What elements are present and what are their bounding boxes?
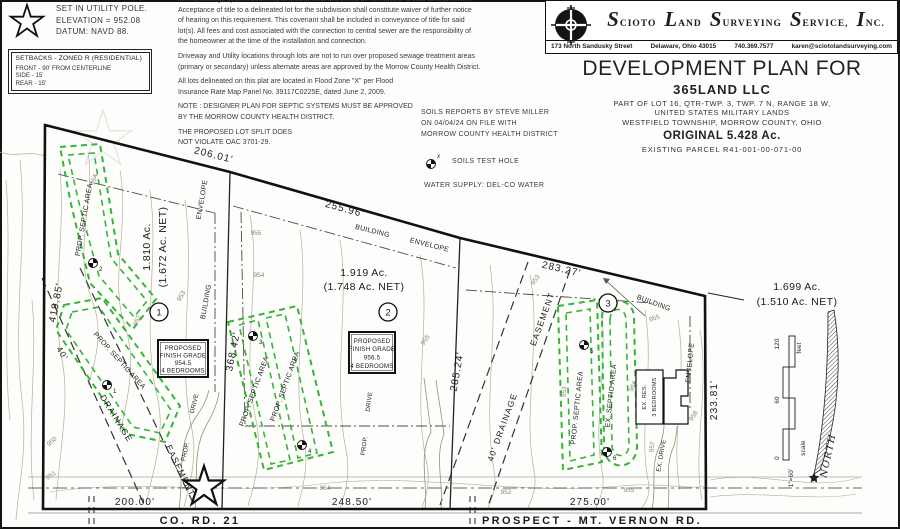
svg-text:958: 958: [688, 409, 700, 422]
grade2-elevation: 956.5: [364, 355, 381, 362]
note-line: (primary or secondary) unless alternate …: [178, 63, 560, 74]
test-hole-1: 1: [113, 388, 117, 395]
building-envelope-lines: [58, 174, 690, 426]
benchmark-line1: SET IN UTILITY POLE.: [56, 3, 147, 15]
svg-text:953: 953: [176, 289, 188, 302]
lot3-acreage-leader: [708, 293, 744, 300]
envelope-label-lot3: ENVELOPE: [685, 343, 695, 384]
grade-box-lot1: PROPOSED FINISH GRADE 954.5 4 BEDROOMS: [158, 340, 208, 377]
firm-email: karen@sciotolandsurveying.com: [792, 43, 892, 50]
ex-res-bedrooms-label: 3 BEDROOMS: [652, 377, 658, 416]
building-label-lot1: BUILDING: [200, 284, 213, 320]
dim-275: 275.00': [570, 497, 610, 508]
lot3-acres: 1.699 Ac.: [773, 281, 820, 293]
legal-line: UNITED STATES MILITARY LANDS: [547, 108, 897, 117]
survey-plat-sheet: EX. RES. 3 BEDROOMS PROPOSED FINISH GRAD…: [0, 0, 900, 529]
svg-text:957: 957: [649, 441, 657, 453]
legend-x-mark: x: [436, 153, 441, 160]
grade2-bedrooms: 4 BEDROOMS: [350, 363, 393, 370]
drive-label-lot2: DRIVE: [365, 391, 375, 412]
soils-report-line: SOILS REPORTS BY STEVE MILLER: [421, 107, 558, 118]
firm-word: SURVEYING: [710, 7, 782, 32]
note-line: of hearing on this requirement. This cov…: [178, 16, 560, 27]
road-label-prospect-mt-vernon: PROSPECT - MT. VERNON RD.: [482, 515, 702, 527]
note-line: All lots delineated on this plat are loc…: [178, 77, 560, 88]
owner-name: 365LAND LLC: [547, 82, 897, 97]
firm-contact-row: 173 North Sandusky Street Delaware, Ohio…: [546, 40, 897, 53]
easement-40-label-lot1: 40': [54, 345, 70, 363]
firm-word: SCIOTO: [607, 7, 656, 32]
drainage-easement-lines: [42, 262, 570, 509]
setback-front: FRONT - 90' FROM CENTERLINE: [16, 65, 145, 73]
acreage-labels: 1.810 Ac. (1.672 Ac. NET) 1.919 Ac. (1.7…: [141, 207, 837, 321]
svg-text:955: 955: [624, 487, 635, 494]
grade1-line1: PROPOSED: [165, 345, 202, 352]
setback-rear: REAR - 15': [16, 80, 145, 88]
dim-368: 368.42': [224, 331, 242, 373]
soils-report-line: ON 04/04/24 ON FILE WITH: [421, 118, 558, 129]
easement-label-lot3: EASEMENT: [528, 291, 557, 347]
test-hole-6: 6: [613, 455, 617, 462]
north-arrow: NORTH: [809, 310, 839, 482]
firm-address: 173 North Sandusky Street: [551, 43, 632, 50]
title-block: DEVELOPMENT PLAN FOR 365LAND LLC PART OF…: [547, 57, 897, 154]
soil-test-hole-legend-icon: [427, 160, 436, 169]
grade1-bedrooms: 4 BEDROOMS: [161, 368, 204, 375]
setbacks-box: SETBACKS - ZONED R (RESIDENTIAL) FRONT -…: [8, 49, 152, 94]
svg-text:954: 954: [254, 272, 265, 279]
benchmark-line2: ELEVATION = 952.08: [56, 15, 147, 27]
building-label-lot3: BUILDING: [636, 294, 672, 313]
scale-bar: 120 60 0 feet scale 1"=60': [774, 336, 807, 487]
svg-text:950: 950: [46, 435, 59, 448]
dim-233: 233.81': [709, 380, 720, 420]
svg-text:955: 955: [420, 333, 432, 346]
benchmark-legend-star: [11, 5, 43, 36]
svg-text:951: 951: [45, 470, 58, 482]
scale-ratio: 1"=60': [788, 469, 795, 488]
existing-parcel-number: EXISTING PARCEL R41-001-00-071-00: [547, 145, 897, 154]
grade1-elevation: 954.5: [175, 360, 192, 367]
firm-word: SERVICE,: [790, 7, 849, 32]
envelope-label-lot2: ENVELOPE: [409, 237, 450, 254]
septic-label-lot2-b: PROP. SEPTIC AREA: [270, 351, 302, 423]
benchmark-line3: DATUM: NAVD 88.: [56, 26, 147, 38]
grade2-line1: PROPOSED: [354, 338, 391, 345]
water-supply-note: WATER SUPPLY: DEL-CO WATER: [424, 182, 544, 189]
test-hole-2: 2: [99, 266, 103, 273]
septic-label-lot1-lower: PROP. SEPTIC AREA: [92, 331, 147, 391]
soils-test-hole-legend-label: SOILS TEST HOLE: [452, 158, 519, 165]
scale-word: scale: [800, 440, 807, 456]
test-hole-4: 4: [308, 448, 312, 455]
prop-label-lot2: PROP.: [360, 436, 370, 456]
building-label-lot2: BUILDING: [354, 224, 390, 239]
lot1-net-acres: (1.672 Ac. NET): [157, 207, 169, 288]
prop-label-lot1: PROP.: [180, 441, 192, 462]
legal-line: WESTFIELD TOWNSHIP, MORROW COUNTY, OHIO: [547, 118, 897, 127]
grade2-line2: FINISH GRADE: [349, 346, 395, 353]
scale-feet: feet: [796, 342, 803, 353]
dimension-labels: 206.01' 255.96' 283.27' 233.81' 419.85' …: [47, 145, 720, 508]
scale-120: 120: [774, 338, 781, 349]
dim-255: 255.96': [324, 199, 366, 220]
scale-0: 0: [774, 456, 781, 460]
soils-report-note: SOILS REPORTS BY STEVE MILLER ON 04/04/2…: [421, 107, 558, 140]
firm-city: Delaware, Ohio 43015: [651, 43, 717, 50]
plan-title: DEVELOPMENT PLAN FOR: [547, 57, 897, 81]
ex-res-label: EX. RES.: [642, 384, 648, 409]
scale-60: 60: [774, 396, 781, 404]
svg-text:955: 955: [251, 230, 262, 237]
setback-side: SIDE - 15': [16, 72, 145, 80]
lot1-number: 1: [156, 308, 161, 319]
road-label-co-rd-21: CO. RD. 21: [160, 515, 241, 527]
existing-residence: EX. RES. 3 BEDROOMS: [636, 370, 688, 424]
original-acreage: ORIGINAL 5.428 Ac.: [547, 130, 897, 142]
svg-text:953: 953: [530, 273, 542, 286]
benchmark-note: SET IN UTILITY POLE. ELEVATION = 952.08 …: [56, 3, 147, 38]
surveyor-logo-box: SCIOTOLANDSURVEYINGSERVICE,INC. 173 Nort…: [545, 0, 898, 54]
note-line: lot(s). All fees and cost associated wit…: [178, 27, 560, 38]
lot3-number: 3: [605, 299, 610, 310]
svg-text:953: 953: [561, 386, 569, 398]
lot3-net-acres: (1.510 Ac. NET): [757, 296, 838, 308]
firm-phone: 740.369.7577: [734, 43, 773, 50]
legal-description: PART OF LOT 16, QTR-TWP. 3, TWP. 7 N, RA…: [547, 99, 897, 127]
dim-248: 248.50': [332, 497, 372, 508]
test-hole-5: 5: [590, 348, 594, 355]
firm-word: LAND: [664, 7, 701, 32]
svg-text:952: 952: [501, 489, 512, 496]
note-line: Driveway and Utility locations through l…: [178, 52, 560, 63]
note-line: the homeowner at the time of the install…: [178, 37, 560, 48]
note-line: Insurance Rate Map Panel No. 39117C0225E…: [178, 88, 560, 99]
legal-line: PART OF LOT 16, QTR-TWP. 3, TWP. 7 N, RA…: [547, 99, 897, 108]
test-hole-3: 3: [259, 339, 263, 346]
lot2-net-acres: (1.748 Ac. NET): [324, 281, 405, 293]
firm-word: INC.: [857, 7, 885, 32]
envelope-label-lot1: ENVELOPE: [196, 179, 210, 220]
dim-285: 285.24': [449, 351, 467, 393]
easement-drainage-label-lot1: DRAINAGE: [98, 393, 135, 444]
dim-200: 200.00': [115, 497, 155, 508]
note-line: Acceptance of title to a delineated lot …: [178, 6, 560, 17]
north-star-icon: [809, 473, 819, 483]
grade1-line2: FINISH GRADE: [160, 353, 206, 360]
setbacks-box-inner: SETBACKS - ZONED R (RESIDENTIAL) FRONT -…: [11, 52, 150, 92]
grade-box-lot2: PROPOSED FINISH GRADE 956.5 4 BEDROOMS: [349, 332, 395, 373]
septic-label-lot3-prop: PROP. SEPTIC AREA: [570, 371, 585, 445]
lot-line-1-2: [222, 172, 230, 509]
lot2-acres: 1.919 Ac.: [340, 267, 387, 279]
drive-label-lot1: DRIVE: [189, 393, 201, 414]
septic-label-lot3-ex: EX. SEPTIC AREA: [605, 364, 619, 428]
setbacks-title: SETBACKS - ZONED R (RESIDENTIAL): [16, 55, 145, 62]
septic-label-lot2-a: PROP. SEPTIC AREA: [239, 356, 271, 428]
soils-report-line: MORROW COUNTY HEALTH DISTRICT: [421, 129, 558, 140]
svg-text:955: 955: [648, 313, 661, 323]
lot1-acres: 1.810 Ac.: [141, 223, 153, 270]
dim-419: 419.85': [47, 282, 65, 324]
ex-drive-label-lot3: EX. DRIVE: [655, 439, 668, 472]
lot2-number: 2: [385, 308, 390, 319]
firm-name: SCIOTOLANDSURVEYINGSERVICE,INC.: [598, 7, 894, 32]
svg-text:954: 954: [320, 485, 331, 492]
